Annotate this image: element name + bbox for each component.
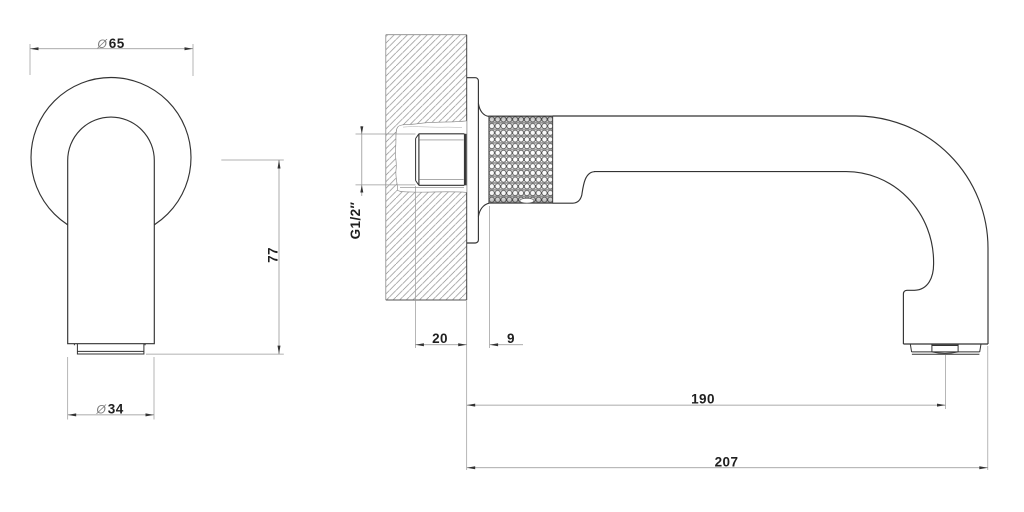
- svg-text:20: 20: [432, 331, 448, 346]
- svg-text:77: 77: [266, 247, 281, 263]
- svg-text:G1/2″: G1/2″: [348, 201, 363, 239]
- svg-text:Ø65: Ø65: [96, 36, 124, 51]
- svg-text:Ø34: Ø34: [95, 401, 123, 416]
- svg-text:207: 207: [715, 454, 739, 469]
- svg-text:190: 190: [691, 392, 715, 407]
- svg-text:9: 9: [507, 331, 515, 346]
